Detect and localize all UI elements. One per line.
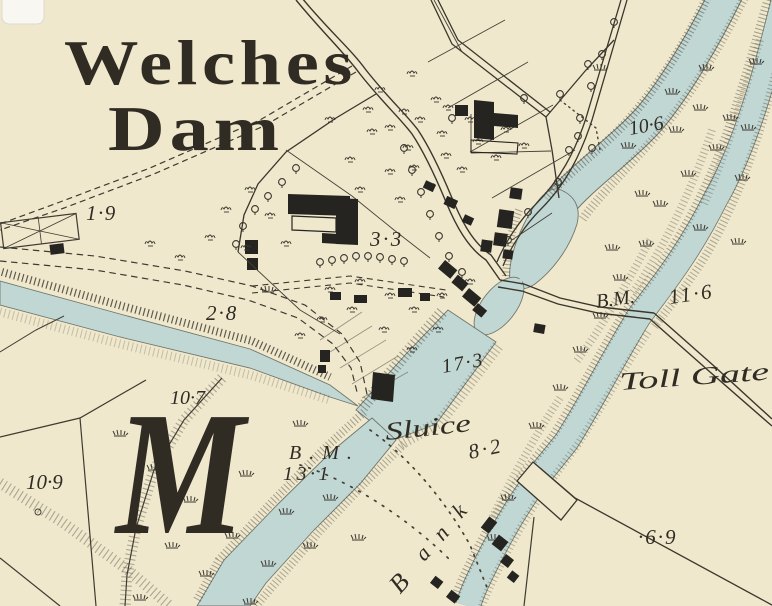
svg-text:10·7: 10·7 bbox=[170, 387, 206, 409]
svg-text:3·3: 3·3 bbox=[369, 227, 404, 251]
svg-text:Dam: Dam bbox=[108, 93, 284, 164]
svg-text:2·8: 2·8 bbox=[206, 301, 238, 325]
svg-text:13·1: 13·1 bbox=[283, 463, 332, 485]
svg-text:·6·9: ·6·9 bbox=[638, 525, 678, 549]
svg-text:B.M.: B.M. bbox=[289, 442, 360, 464]
svg-text:10·9: 10·9 bbox=[26, 470, 63, 494]
svg-text:1·9: 1·9 bbox=[86, 201, 117, 225]
svg-text:Welches: Welches bbox=[64, 27, 357, 98]
